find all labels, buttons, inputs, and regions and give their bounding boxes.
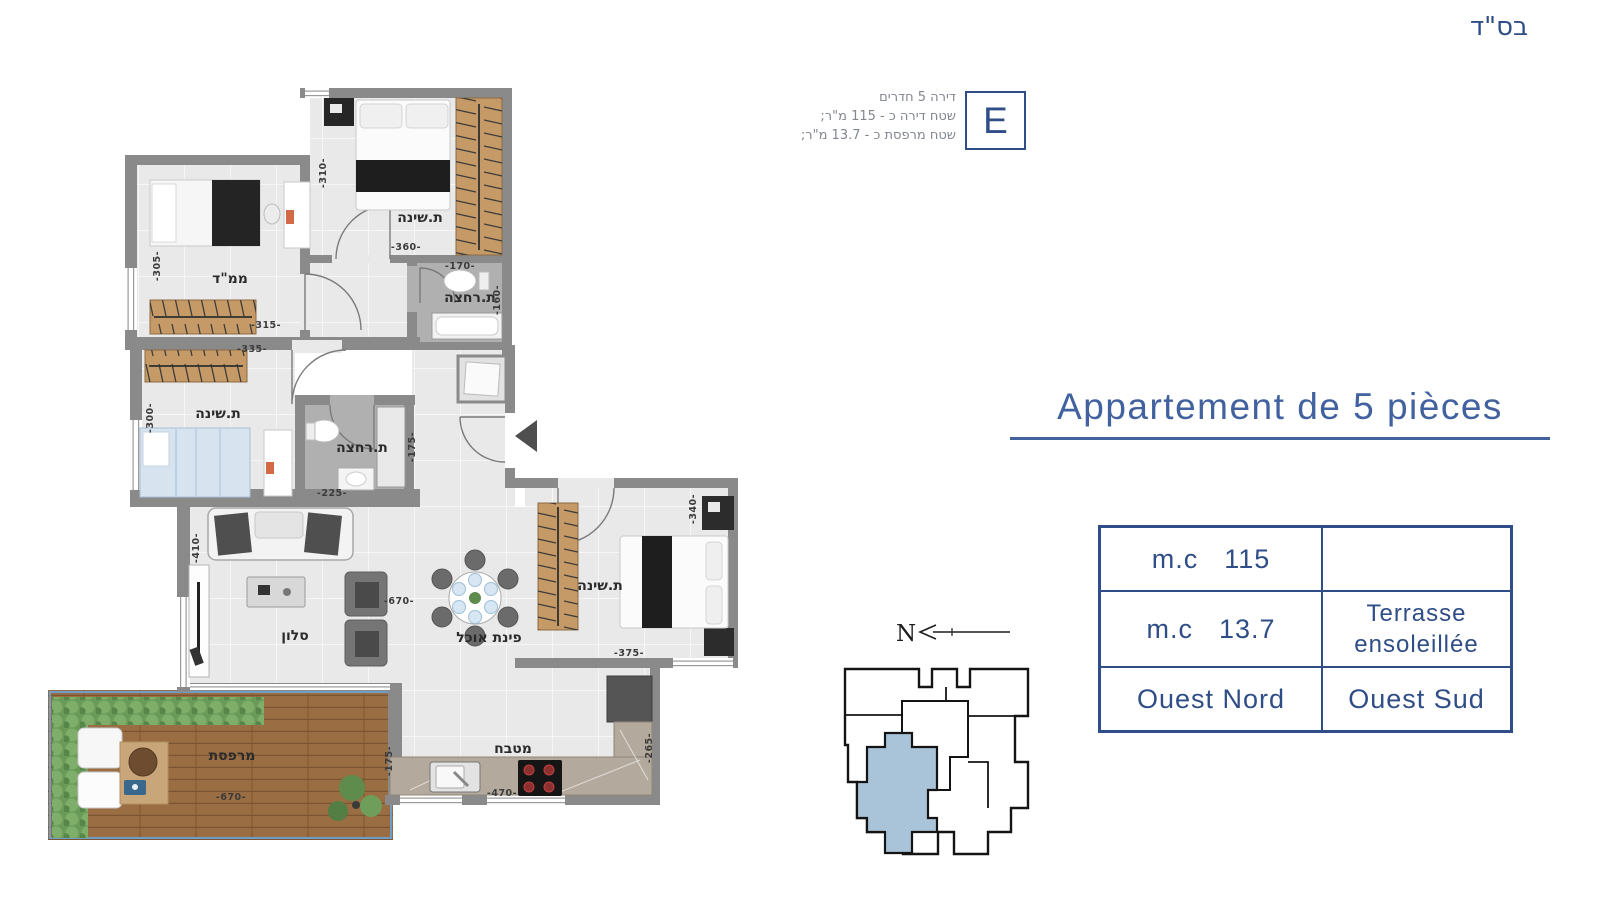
window	[400, 795, 462, 805]
unit-letter-box: E	[965, 91, 1026, 150]
dim-label: -670-	[216, 792, 246, 803]
double-bed	[620, 536, 728, 628]
dim-label: -410-	[191, 533, 202, 563]
dim-label: -300-	[145, 403, 156, 433]
room-label-bedroom-top: ת.שינה	[397, 210, 443, 226]
terrace-value: 13.7	[1219, 614, 1276, 645]
unit-info-line: שטח דירה כ - 115 מ"ר;	[836, 107, 956, 126]
floor-plan: ת.שינה ממ"ד ת.רחצה ת.שינה ת.רחצה סלון פי…	[0, 0, 760, 860]
dim-label: -315-	[251, 320, 281, 331]
armchair	[345, 620, 387, 666]
room-label-dining: פינת אוכל	[456, 630, 522, 646]
dim-label: -335-	[237, 344, 267, 355]
unit-info-line: שטח מרפסת כ - 13.7 מ"ר;	[836, 126, 956, 145]
dim-label: -175-	[384, 746, 395, 776]
table-cell-empty	[1323, 528, 1510, 592]
building-locator: N	[815, 595, 1055, 875]
sofa	[208, 508, 353, 560]
dim-label: -310-	[318, 158, 329, 188]
dim-label: -160-	[492, 285, 503, 315]
dim-label: -305-	[152, 251, 163, 281]
dim-label: -375-	[614, 648, 644, 659]
table-cell-area: m.c 115	[1101, 528, 1323, 592]
building-footprint	[845, 669, 1028, 854]
single-bed	[150, 180, 260, 246]
unit-label: m.c	[1146, 614, 1193, 645]
terrace-desc-line: Terrasse	[1354, 598, 1478, 629]
dim-label: -340-	[688, 494, 699, 524]
desk	[264, 430, 292, 496]
shaft	[458, 356, 506, 402]
stove	[518, 760, 562, 796]
table-cell-orientation-left: Ouest Nord	[1101, 668, 1323, 730]
room-label-bathroom-top: ת.רחצה	[444, 290, 496, 306]
room-label-bedroom-left: ת.שינה	[195, 406, 241, 422]
nightstand	[702, 496, 734, 530]
page-title: Appartement de 5 pièces	[1010, 386, 1550, 440]
bsd-text: בס"ד	[1470, 12, 1528, 42]
window	[125, 268, 137, 330]
dim-label: -175-	[407, 432, 418, 462]
north-label: N	[896, 621, 916, 647]
unit-label: m.c	[1152, 544, 1199, 575]
north-compass: N	[896, 621, 1010, 647]
tv-unit	[189, 565, 209, 677]
window	[305, 88, 329, 98]
table-cell-orientation-right: Ouest Sud	[1323, 668, 1510, 730]
sliding-door	[190, 684, 390, 690]
room-label-bathroom-middle: ת.רחצה	[336, 440, 388, 456]
room-label-kitchen: מטבח	[494, 741, 532, 757]
dim-label: -470-	[487, 788, 517, 799]
single-bed	[140, 428, 250, 497]
dim-label: -265-	[644, 733, 655, 763]
room-label-terrace: מרפסת	[209, 748, 256, 764]
entrance-arrow-icon	[515, 420, 537, 452]
window	[673, 658, 733, 668]
toilet	[444, 270, 476, 292]
unit-info-line: דירה 5 חדרים	[836, 88, 956, 107]
window	[177, 597, 190, 687]
fridge	[607, 676, 652, 722]
room-label-living: סלון	[281, 628, 309, 644]
dim-label: -225-	[317, 488, 347, 499]
room-label-bedroom-right: ת.שינה	[577, 578, 623, 594]
coffee-table	[247, 577, 305, 607]
room-label-mamad: ממ"ד	[212, 271, 248, 287]
dim-label: -170-	[445, 261, 475, 272]
nightstand	[704, 628, 734, 656]
armchair	[345, 572, 387, 616]
dim-label: -670-	[384, 596, 414, 607]
unit-info-block: דירה 5 חדרים שטח דירה כ - 115 מ"ר; שטח מ…	[836, 88, 956, 145]
dim-label: -360-	[391, 242, 421, 253]
terrace-area	[48, 690, 393, 840]
table-cell-terrace-desc: Terrasse ensoleillée	[1323, 592, 1510, 668]
spec-table: m.c 115 m.c 13.7 Terrasse ensoleillée Ou…	[1098, 525, 1513, 733]
table-cell-terrace-area: m.c 13.7	[1101, 592, 1323, 668]
double-bed	[356, 100, 450, 210]
kitchen-sink	[430, 762, 480, 792]
terrace-desc-line: ensoleillée	[1354, 629, 1478, 660]
area-value: 115	[1224, 544, 1270, 575]
